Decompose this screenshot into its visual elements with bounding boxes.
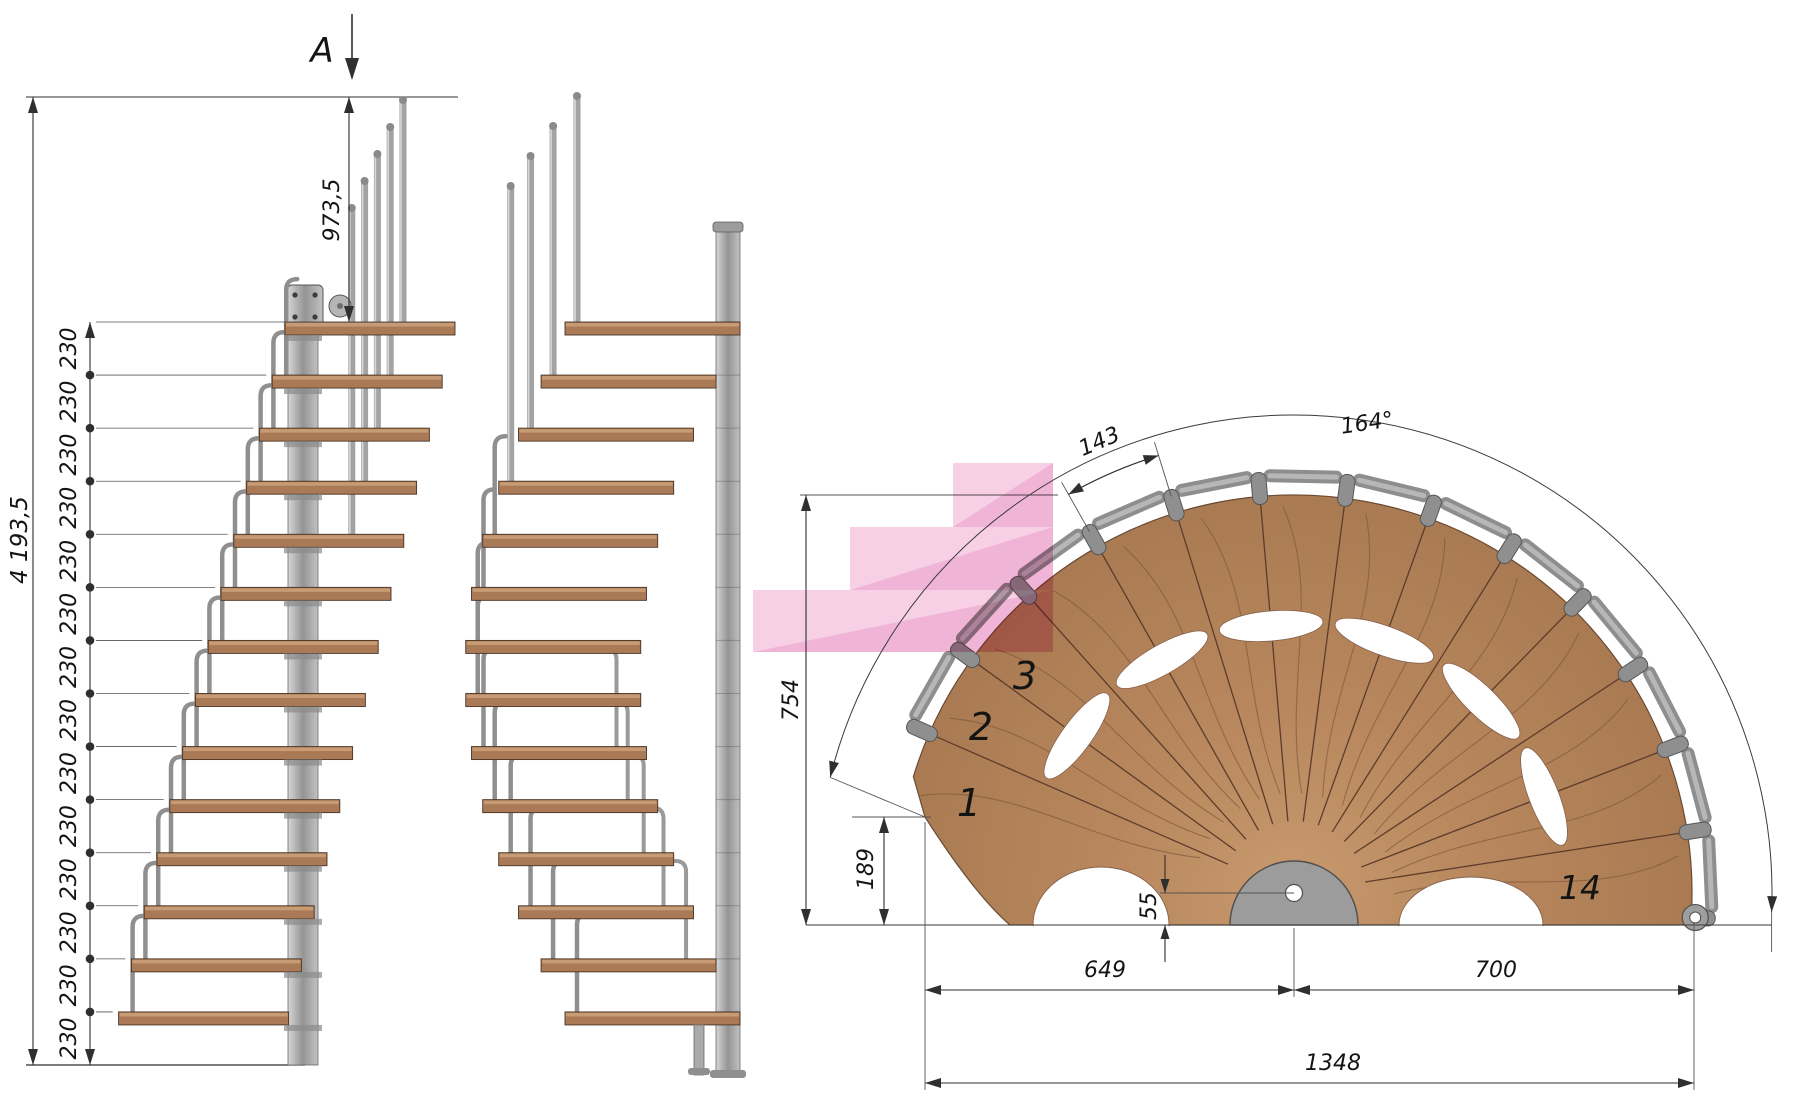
dim-riser-height: 230 bbox=[57, 964, 82, 1006]
dim-right-run: 700 bbox=[1475, 958, 1517, 983]
dim-riser-height: 230 bbox=[57, 381, 82, 423]
dim-rotation-angle: 164° bbox=[1339, 407, 1395, 439]
dim-riser-height: 230 bbox=[57, 752, 82, 794]
staircase-drawing: 2302302302302302302302302302302302302302… bbox=[0, 0, 1800, 1113]
dim-hub-height: 55 bbox=[1137, 892, 1162, 920]
dim-riser-height: 230 bbox=[57, 540, 82, 582]
dim-riser-height: 230 bbox=[57, 328, 82, 370]
dim-riser-height: 230 bbox=[57, 805, 82, 847]
step-number-14: 14 bbox=[1559, 868, 1601, 907]
side-elevation-left bbox=[26, 96, 458, 1065]
step-number-1: 1 bbox=[957, 781, 981, 825]
highlight-overlay bbox=[753, 463, 1053, 652]
dim-riser-height: 230 bbox=[57, 1017, 82, 1059]
dim-total-run: 1348 bbox=[1305, 1051, 1361, 1076]
side-elevation-right bbox=[466, 92, 746, 1078]
dim-top-flight-height: 973,5 bbox=[320, 179, 345, 242]
step-number-3: 3 bbox=[1013, 654, 1037, 698]
drawing-canvas: 2302302302302302302302302302302302302302… bbox=[0, 0, 1800, 1113]
dim-entry-height: 189 bbox=[854, 848, 879, 890]
dim-riser-height: 230 bbox=[57, 487, 82, 529]
dim-total-height: 4 193,5 bbox=[7, 496, 33, 584]
dim-riser-height: 230 bbox=[57, 858, 82, 900]
dim-left-run: 649 bbox=[1084, 958, 1126, 983]
dim-outer-height: 754 bbox=[779, 679, 804, 721]
dim-riser-height: 230 bbox=[57, 911, 82, 953]
dim-riser-height: 230 bbox=[57, 434, 82, 476]
dim-riser-height: 230 bbox=[57, 699, 82, 741]
step-number-2: 2 bbox=[969, 705, 993, 749]
dim-riser-height: 230 bbox=[57, 593, 82, 635]
dim-riser-height: 230 bbox=[57, 646, 82, 688]
section-marker-label: A bbox=[308, 31, 333, 71]
